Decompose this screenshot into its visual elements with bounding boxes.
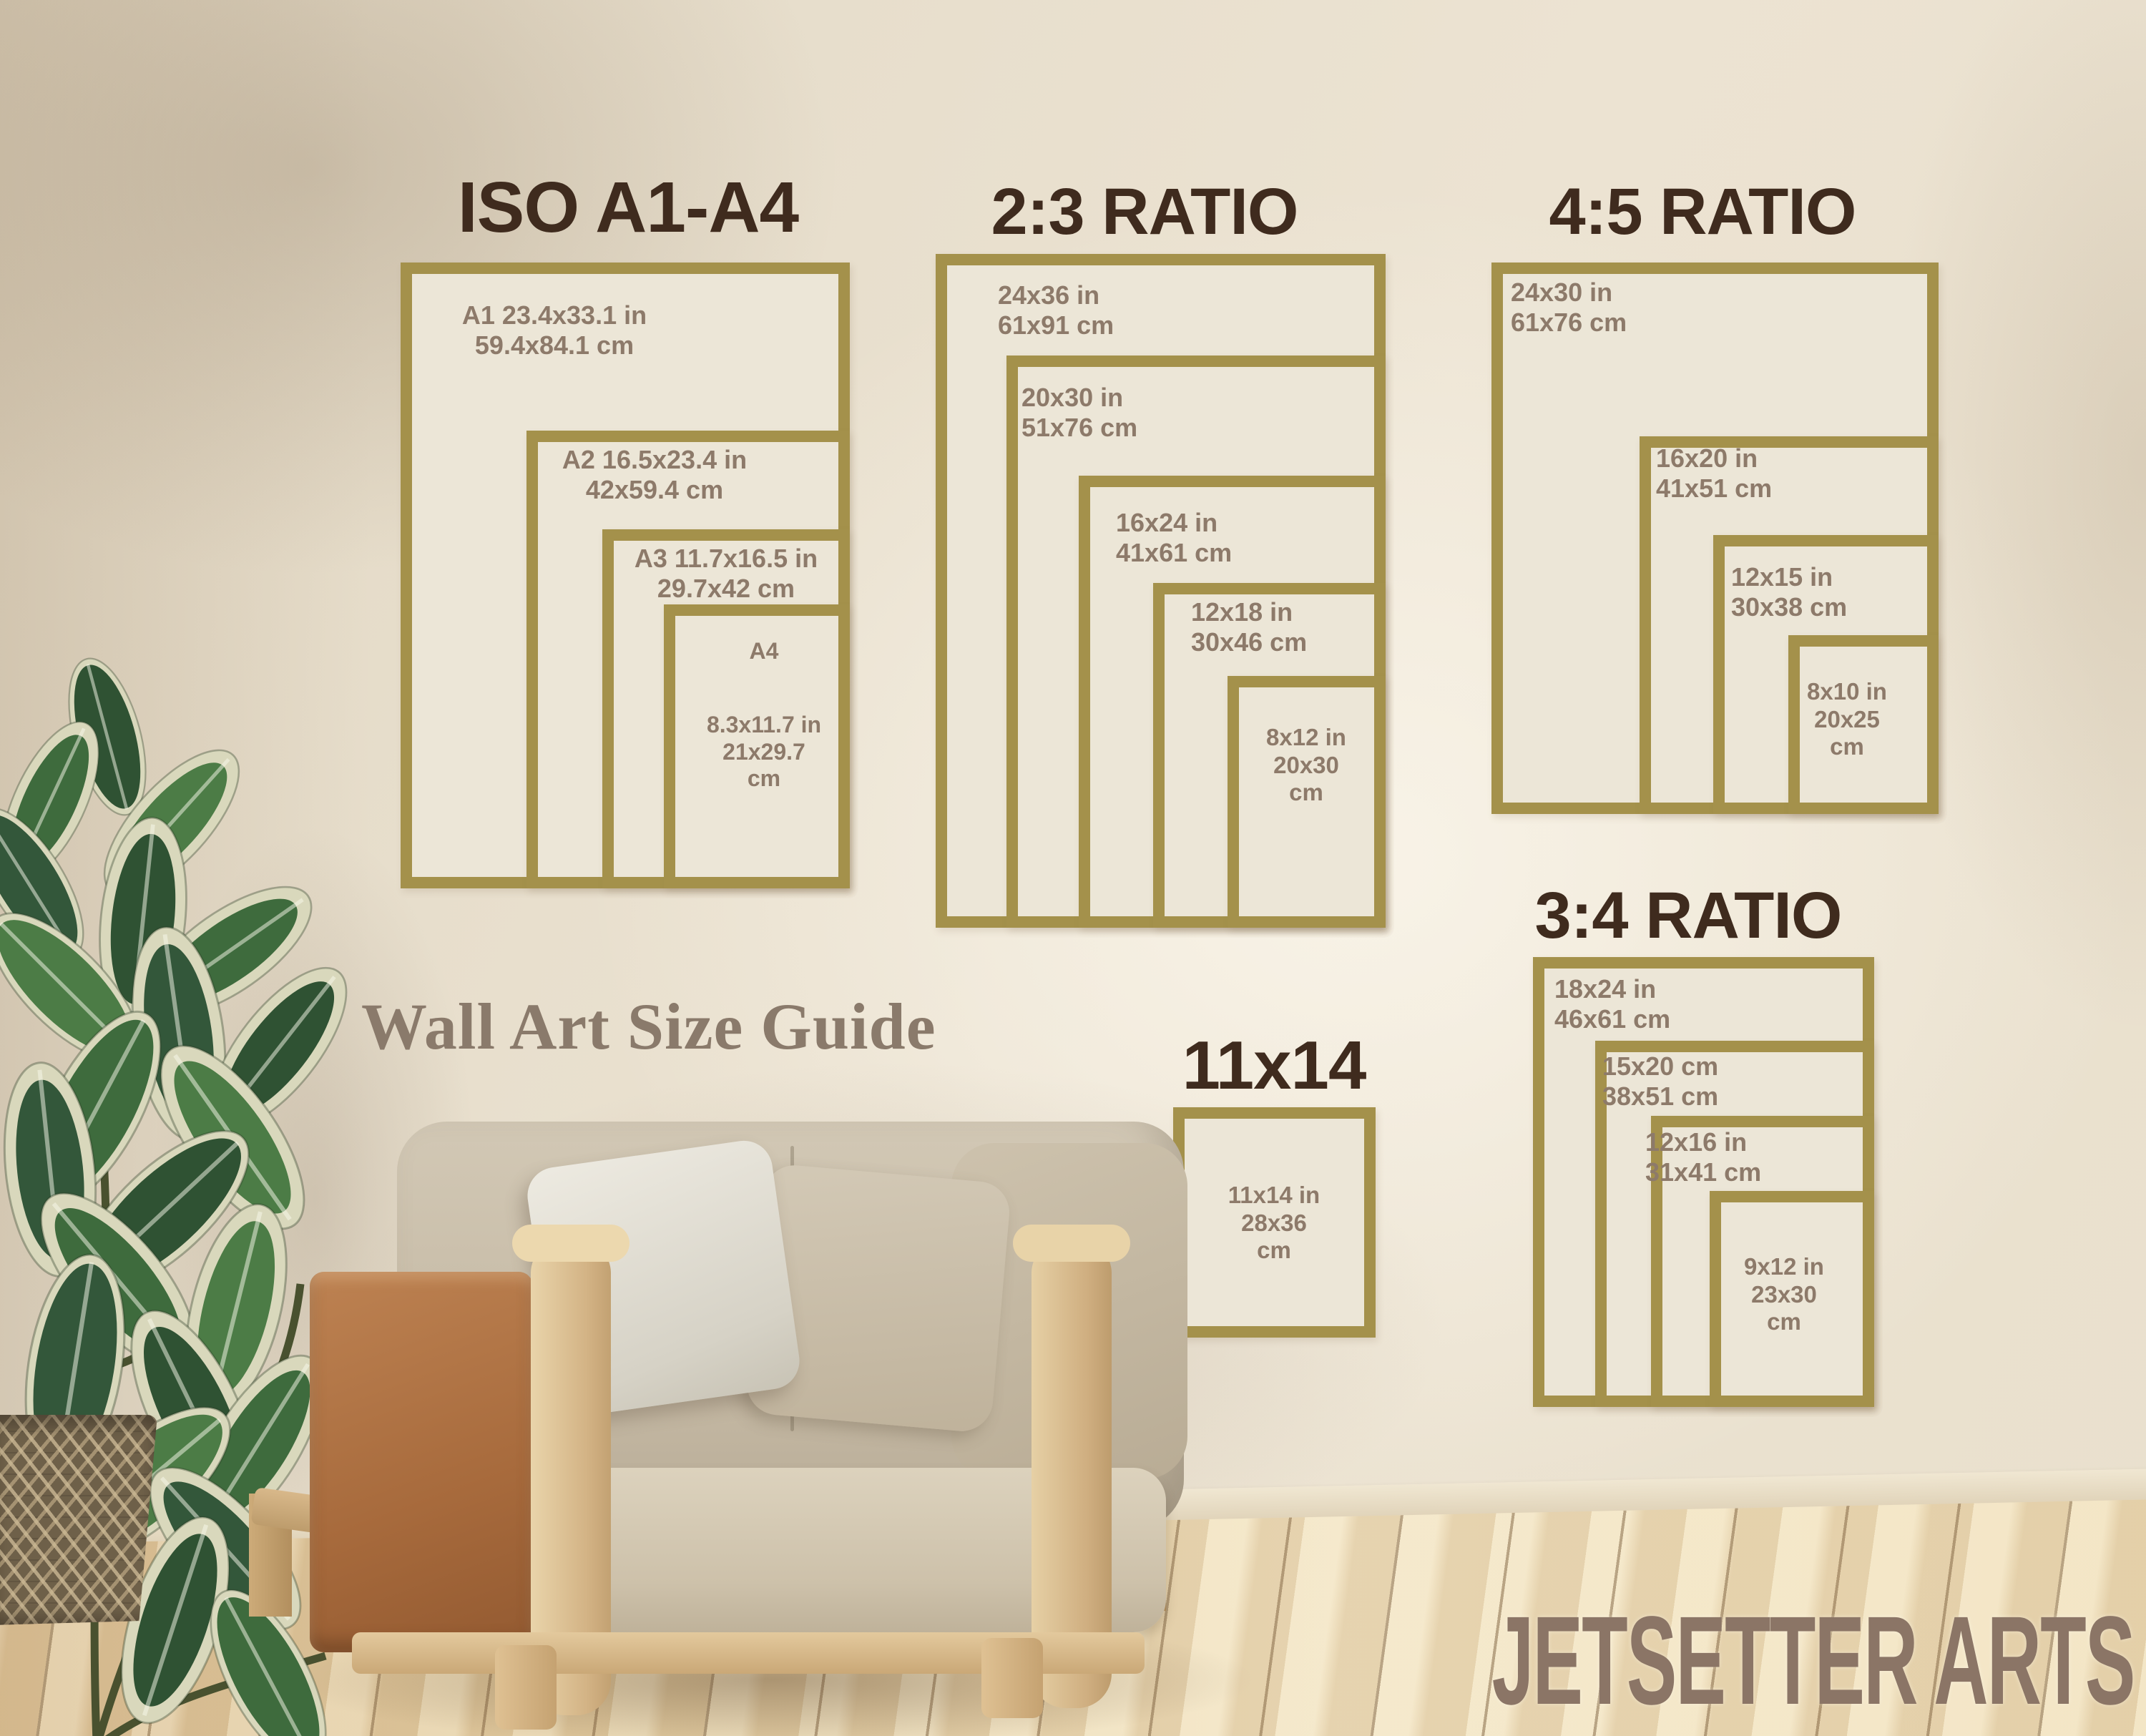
size-label-line: 61x91 cm	[998, 310, 1114, 340]
size-label-line: 8x12 in	[1266, 724, 1346, 752]
size-label-line: 41x61 cm	[1116, 538, 1232, 568]
poster-mockup-scene: ISO A1-A4A1 23.4x33.1 in59.4x84.1 cmA2 1…	[0, 0, 2146, 1736]
size-label-line: 30x46 cm	[1191, 627, 1307, 657]
size-label-line: 31x41 cm	[1645, 1157, 1761, 1187]
size-label-ratio-2-3-20x30: 20x30 in51x76 cm	[1021, 383, 1137, 443]
white-throw-pillow	[524, 1137, 803, 1420]
size-label-line: 21x29.7	[707, 739, 821, 765]
size-label-line: 38x51 cm	[1602, 1082, 1718, 1112]
size-label-line: 12x16 in	[1645, 1127, 1761, 1157]
size-label-11x14-11x14: 11x14 in28x36cm	[1228, 1182, 1320, 1265]
size-label-line: 61x76 cm	[1511, 308, 1627, 338]
size-label-ratio-4-5-8x10: 8x10 in20x25cm	[1807, 678, 1887, 761]
size-label-line: 9x12 in	[1744, 1253, 1824, 1281]
size-label-line: A3 11.7x16.5 in	[635, 544, 818, 574]
size-label-ratio-2-3-12x18: 12x18 in30x46 cm	[1191, 597, 1307, 657]
size-label-line: A4	[707, 638, 821, 665]
size-label-line: 18x24 in	[1554, 974, 1670, 1004]
size-label-iso-a1-a4-A3: A3 11.7x16.5 in29.7x42 cm	[635, 544, 818, 604]
section-title-ratio-2-3: 2:3 RATIO	[991, 179, 1298, 245]
section-title-ratio-3-4: 3:4 RATIO	[1535, 883, 1842, 948]
size-label-line: A1 23.4x33.1 in	[462, 300, 647, 330]
size-label-line: 29.7x42 cm	[635, 574, 818, 604]
section-title-11x14: 11x14	[1182, 1031, 1366, 1100]
size-label-ratio-3-4-18x24: 18x24 in46x61 cm	[1554, 974, 1670, 1034]
chair-back-cushion	[397, 1122, 1184, 1529]
size-label-line: 20x30 in	[1021, 383, 1137, 413]
size-label-ratio-2-3-24x36: 24x36 in61x91 cm	[998, 280, 1114, 340]
chair-armrest-right	[1013, 1225, 1130, 1262]
size-label-ratio-3-4-12x16: 12x16 in31x41 cm	[1645, 1127, 1761, 1187]
size-label-line: cm	[1744, 1308, 1824, 1336]
size-label-line: cm	[1807, 733, 1887, 761]
chair-side-cushion	[951, 1143, 1187, 1479]
size-label-line: 59.4x84.1 cm	[462, 330, 647, 361]
size-label-line: 42x59.4 cm	[562, 475, 747, 505]
brand-watermark: JETSETTER ARTS	[1492, 1598, 2135, 1724]
size-label-line: 41x51 cm	[1656, 474, 1772, 504]
size-label-line: cm	[1228, 1237, 1320, 1265]
size-label-line: 51x76 cm	[1021, 413, 1137, 443]
size-label-line: 28x36	[1228, 1210, 1320, 1237]
size-label-line: 30x38 cm	[1731, 592, 1847, 622]
size-label-ratio-4-5-12x15: 12x15 in30x38 cm	[1731, 562, 1847, 622]
size-label-line: 12x15 in	[1731, 562, 1847, 592]
size-label-line: 46x61 cm	[1554, 1004, 1670, 1034]
size-label-line: 23x30	[1744, 1281, 1824, 1309]
size-label-ratio-2-3-8x12: 8x12 in20x30cm	[1266, 724, 1346, 807]
beige-throw-pillow	[744, 1163, 1011, 1434]
size-label-line: 20x25	[1807, 706, 1887, 734]
size-label-ratio-3-4-9x12: 9x12 in23x30cm	[1744, 1253, 1824, 1336]
size-label-iso-a1-a4-A1: A1 23.4x33.1 in59.4x84.1 cm	[462, 300, 647, 361]
size-label-line: 24x30 in	[1511, 278, 1627, 308]
size-label-line: A2 16.5x23.4 in	[562, 445, 747, 475]
size-label-ratio-3-4-15x20: 15x20 cm38x51 cm	[1602, 1051, 1718, 1112]
size-label-line: 16x20 in	[1656, 443, 1772, 474]
size-label-line: 8.3x11.7 in	[707, 712, 821, 738]
size-label-iso-a1-a4-A4: A48.3x11.7 in21x29.7cm	[707, 638, 821, 793]
size-label-ratio-4-5-24x30: 24x30 in61x76 cm	[1511, 278, 1627, 338]
chair-armrest-left	[512, 1225, 629, 1262]
size-label-line: 24x36 in	[998, 280, 1114, 310]
size-label-line: cm	[707, 765, 821, 792]
size-label-iso-a1-a4-A2: A2 16.5x23.4 in42x59.4 cm	[562, 445, 747, 505]
size-label-ratio-4-5-16x20: 16x20 in41x51 cm	[1656, 443, 1772, 504]
size-label-line: 11x14 in	[1228, 1182, 1320, 1210]
size-label-ratio-2-3-16x24: 16x24 in41x61 cm	[1116, 508, 1232, 568]
chair-floor-shadow	[272, 1608, 1273, 1736]
size-label-line: cm	[1266, 779, 1346, 807]
size-label-line: 12x18 in	[1191, 597, 1307, 627]
size-label-line: 8x10 in	[1807, 678, 1887, 706]
size-label-line: 20x30	[1266, 752, 1346, 780]
section-title-iso-a1-a4: ISO A1-A4	[458, 172, 798, 243]
woven-basket-planter	[0, 1415, 157, 1625]
section-title-ratio-4-5: 4:5 RATIO	[1549, 179, 1856, 245]
size-label-line: 16x24 in	[1116, 508, 1232, 538]
size-label-line: 15x20 cm	[1602, 1051, 1718, 1082]
